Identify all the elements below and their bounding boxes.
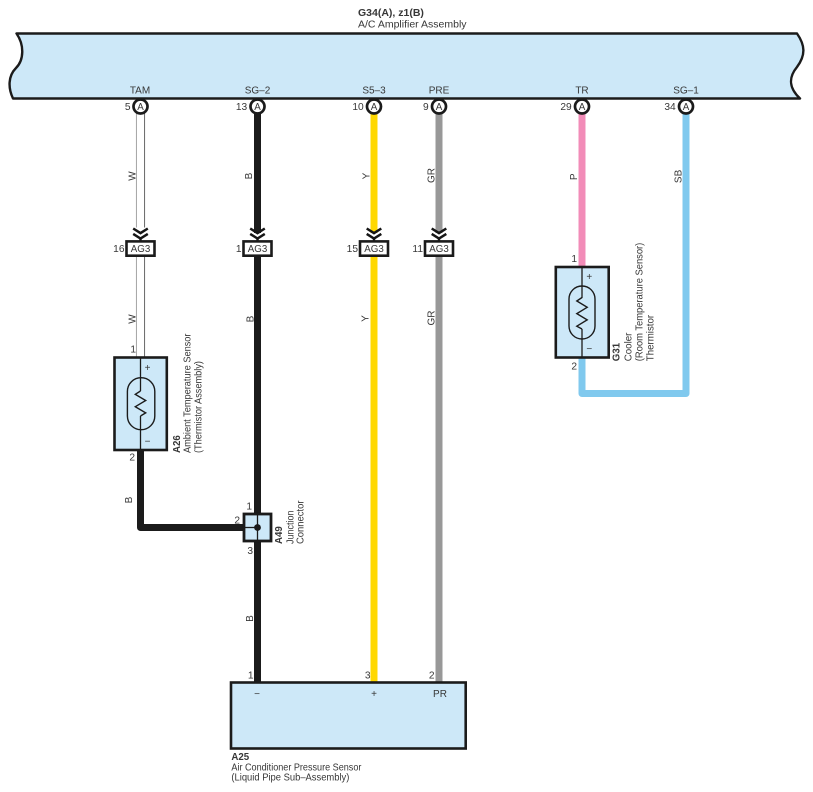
svg-text:B: B — [124, 496, 135, 503]
svg-text:1: 1 — [246, 502, 252, 513]
svg-text:1: 1 — [236, 244, 242, 255]
svg-text:10: 10 — [352, 102, 364, 113]
svg-text:+: + — [586, 272, 592, 283]
svg-text:SG–2: SG–2 — [245, 86, 271, 97]
svg-text:B: B — [245, 615, 256, 622]
svg-text:P: P — [569, 173, 580, 180]
svg-text:5: 5 — [125, 102, 131, 113]
svg-text:(Thermistor Assembly): (Thermistor Assembly) — [193, 361, 204, 453]
svg-text:34: 34 — [664, 102, 676, 113]
svg-text:3: 3 — [365, 671, 371, 682]
svg-text:2: 2 — [429, 671, 435, 682]
svg-text:S5–3: S5–3 — [362, 86, 386, 97]
svg-text:Ambient Temperature Sensor: Ambient Temperature Sensor — [183, 333, 194, 453]
svg-text:G31: G31 — [612, 342, 623, 361]
svg-text:13: 13 — [236, 102, 248, 113]
svg-text:PR: PR — [433, 689, 447, 700]
svg-text:Y: Y — [361, 172, 372, 179]
svg-text:(Room Temperature Sensor): (Room Temperature Sensor) — [634, 243, 645, 362]
svg-text:Connector: Connector — [296, 500, 307, 544]
svg-text:3: 3 — [247, 546, 253, 557]
svg-text:GR: GR — [426, 168, 437, 183]
svg-text:2: 2 — [129, 453, 135, 464]
svg-text:9: 9 — [423, 102, 429, 113]
svg-text:11: 11 — [412, 244, 423, 255]
svg-text:+: + — [145, 363, 151, 374]
svg-text:Y: Y — [361, 315, 372, 322]
svg-text:G34(A), z1(B): G34(A), z1(B) — [358, 7, 424, 19]
svg-text:TR: TR — [575, 86, 588, 97]
svg-text:A: A — [579, 102, 586, 113]
svg-text:2: 2 — [234, 516, 240, 527]
svg-text:A: A — [137, 102, 144, 113]
svg-text:TAM: TAM — [130, 86, 150, 97]
svg-text:1: 1 — [571, 254, 577, 265]
svg-text:1: 1 — [130, 345, 136, 356]
svg-text:GR: GR — [427, 311, 438, 326]
svg-text:16: 16 — [113, 244, 125, 255]
svg-text:SB: SB — [673, 169, 684, 183]
svg-text:A/C Amplifier Assembly: A/C Amplifier Assembly — [358, 19, 467, 31]
svg-text:AG3: AG3 — [131, 244, 151, 255]
svg-text:W: W — [127, 171, 138, 181]
svg-text:+: + — [371, 689, 377, 700]
svg-text:AG3: AG3 — [248, 244, 268, 255]
svg-text:Thermistor: Thermistor — [646, 314, 657, 361]
svg-text:B: B — [245, 315, 256, 322]
svg-text:A: A — [254, 102, 261, 113]
svg-text:15: 15 — [347, 244, 359, 255]
svg-text:Cooler: Cooler — [624, 332, 635, 361]
svg-text:SG–1: SG–1 — [673, 86, 699, 97]
svg-text:A: A — [683, 102, 690, 113]
svg-text:PRE: PRE — [429, 86, 450, 97]
svg-text:A26: A26 — [172, 435, 183, 453]
svg-text:−: − — [586, 344, 592, 355]
svg-text:1: 1 — [248, 671, 254, 682]
svg-text:A49: A49 — [274, 526, 285, 544]
svg-text:A25: A25 — [231, 752, 249, 763]
svg-text:A: A — [436, 102, 443, 113]
svg-text:W: W — [127, 314, 138, 324]
svg-text:29: 29 — [560, 102, 572, 113]
svg-text:(Liquid Pipe Sub–Assembly): (Liquid Pipe Sub–Assembly) — [231, 773, 349, 784]
svg-text:−: − — [254, 689, 260, 700]
svg-text:2: 2 — [571, 362, 577, 373]
svg-text:AG3: AG3 — [429, 244, 449, 255]
svg-text:B: B — [244, 172, 255, 179]
svg-text:−: − — [145, 437, 151, 448]
svg-text:A: A — [371, 102, 378, 113]
svg-text:AG3: AG3 — [364, 244, 384, 255]
